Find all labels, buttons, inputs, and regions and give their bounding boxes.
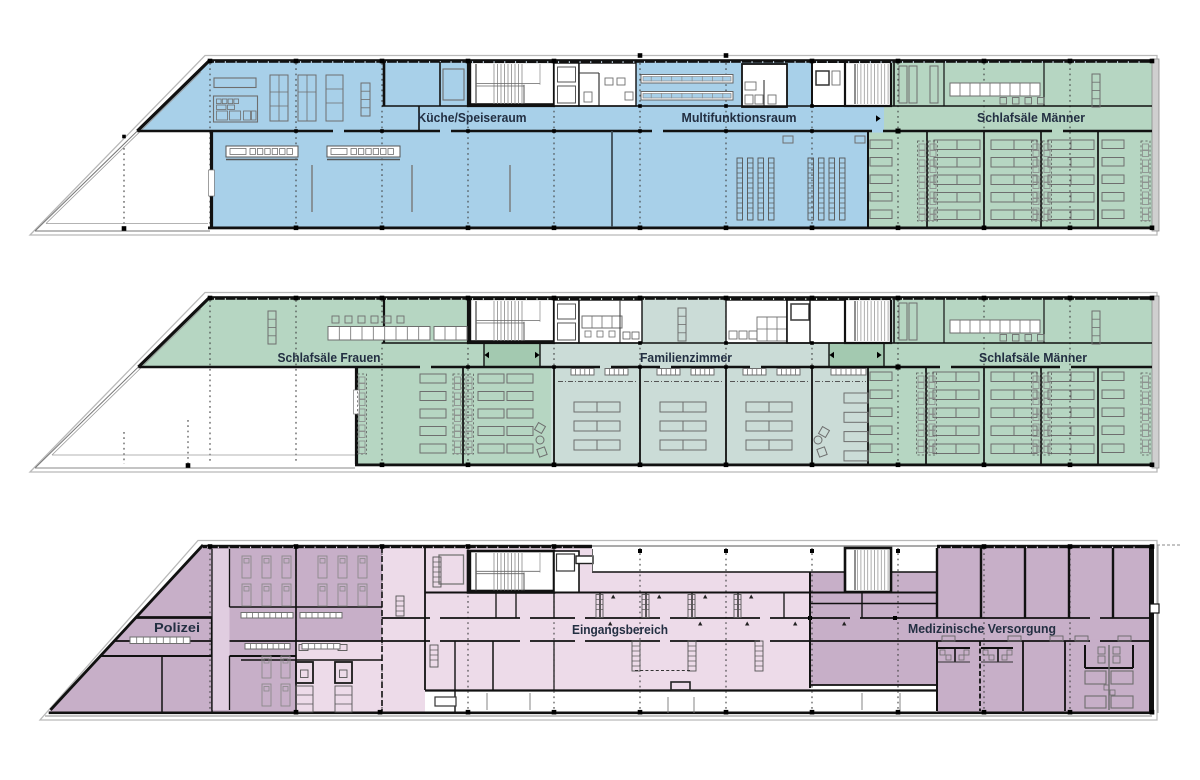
svg-text:Multifunktionsraum: Multifunktionsraum	[682, 110, 797, 125]
svg-text:Schlafsäle Männer: Schlafsäle Männer	[977, 110, 1085, 125]
svg-text:Polizei: Polizei	[154, 620, 200, 635]
svg-text:Familienzimmer: Familienzimmer	[640, 350, 732, 365]
svg-text:Küche/Speiseraum: Küche/Speiseraum	[418, 110, 527, 125]
svg-text:Eingangsbereich: Eingangsbereich	[572, 622, 668, 637]
svg-text:Schlafsäle Frauen: Schlafsäle Frauen	[278, 350, 381, 365]
svg-text:Medizinische Versorgung: Medizinische Versorgung	[908, 621, 1056, 636]
svg-text:Schlafsäle Männer: Schlafsäle Männer	[979, 350, 1087, 365]
